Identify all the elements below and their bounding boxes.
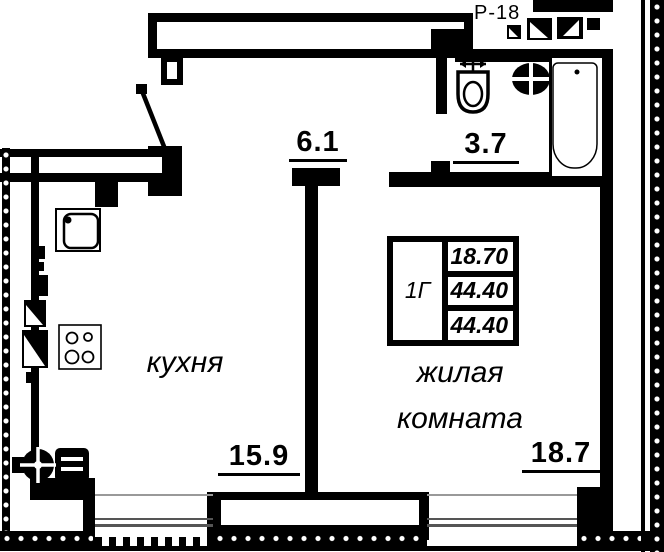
wall-kitchen-living-divider [305, 184, 318, 494]
bathroom-area-label: 3.7 [453, 128, 519, 164]
balcony-door-block [213, 492, 427, 533]
area-table-total: 44.40 [448, 277, 513, 306]
living-window [427, 494, 577, 496]
living-name-line2: комната [375, 396, 545, 442]
living-name-line1: жилая [375, 350, 545, 396]
hall-area-label: 6.1 [289, 126, 347, 162]
wall-entrance-jamb-upper [161, 56, 183, 85]
living-window-sill-2 [427, 524, 577, 527]
area-table-overall: 44.40 [448, 311, 513, 340]
balcony-wall-dotted-mid [213, 531, 427, 546]
living-window-sill-1 [427, 518, 577, 520]
area-table: 1Г 18.70 44.40 44.40 [387, 236, 519, 346]
living-name-label: жилая комната [375, 350, 545, 442]
radiator-icon [10, 440, 95, 490]
balcony-outer-edge [0, 546, 656, 551]
kitchen-name-label: кухня [125, 340, 245, 386]
wall-top-right [533, 0, 613, 12]
wall-right-thin [641, 0, 645, 552]
kitchen-window-sill-1 [95, 518, 213, 520]
wall-right-outer-dotted [650, 0, 664, 552]
kitchen-sink-icon [55, 208, 101, 252]
floor-plan: Р-18 6.1 3.7 15.9 18.7 кухня жилая комна… [0, 0, 664, 552]
unit-label: Р-18 [474, 2, 520, 24]
stove-icon [58, 324, 102, 370]
kitchen-window-sill-2 [95, 524, 213, 527]
balcony-wall-dotted-left [0, 531, 93, 546]
kitchen-area-label: 15.9 [218, 440, 300, 476]
toilet-icon [452, 56, 494, 116]
wall-bathroom-left [436, 56, 447, 114]
wall-left-outer-dotted [2, 148, 10, 548]
bathtub-icon [549, 55, 605, 179]
kitchen-window [95, 494, 213, 496]
vent-shaft-icon [18, 242, 52, 387]
door-swing-icon [134, 82, 174, 157]
living-area-label: 18.7 [522, 437, 600, 473]
wall-bathroom-bottom-tab [431, 161, 450, 173]
wall-kitchen-pier [95, 182, 118, 207]
area-table-living: 18.70 [448, 242, 513, 271]
area-table-type: 1Г [393, 242, 442, 340]
balcony-hatch [95, 537, 213, 546]
washbasin-icon [508, 52, 554, 102]
wall-top-band [148, 13, 473, 58]
